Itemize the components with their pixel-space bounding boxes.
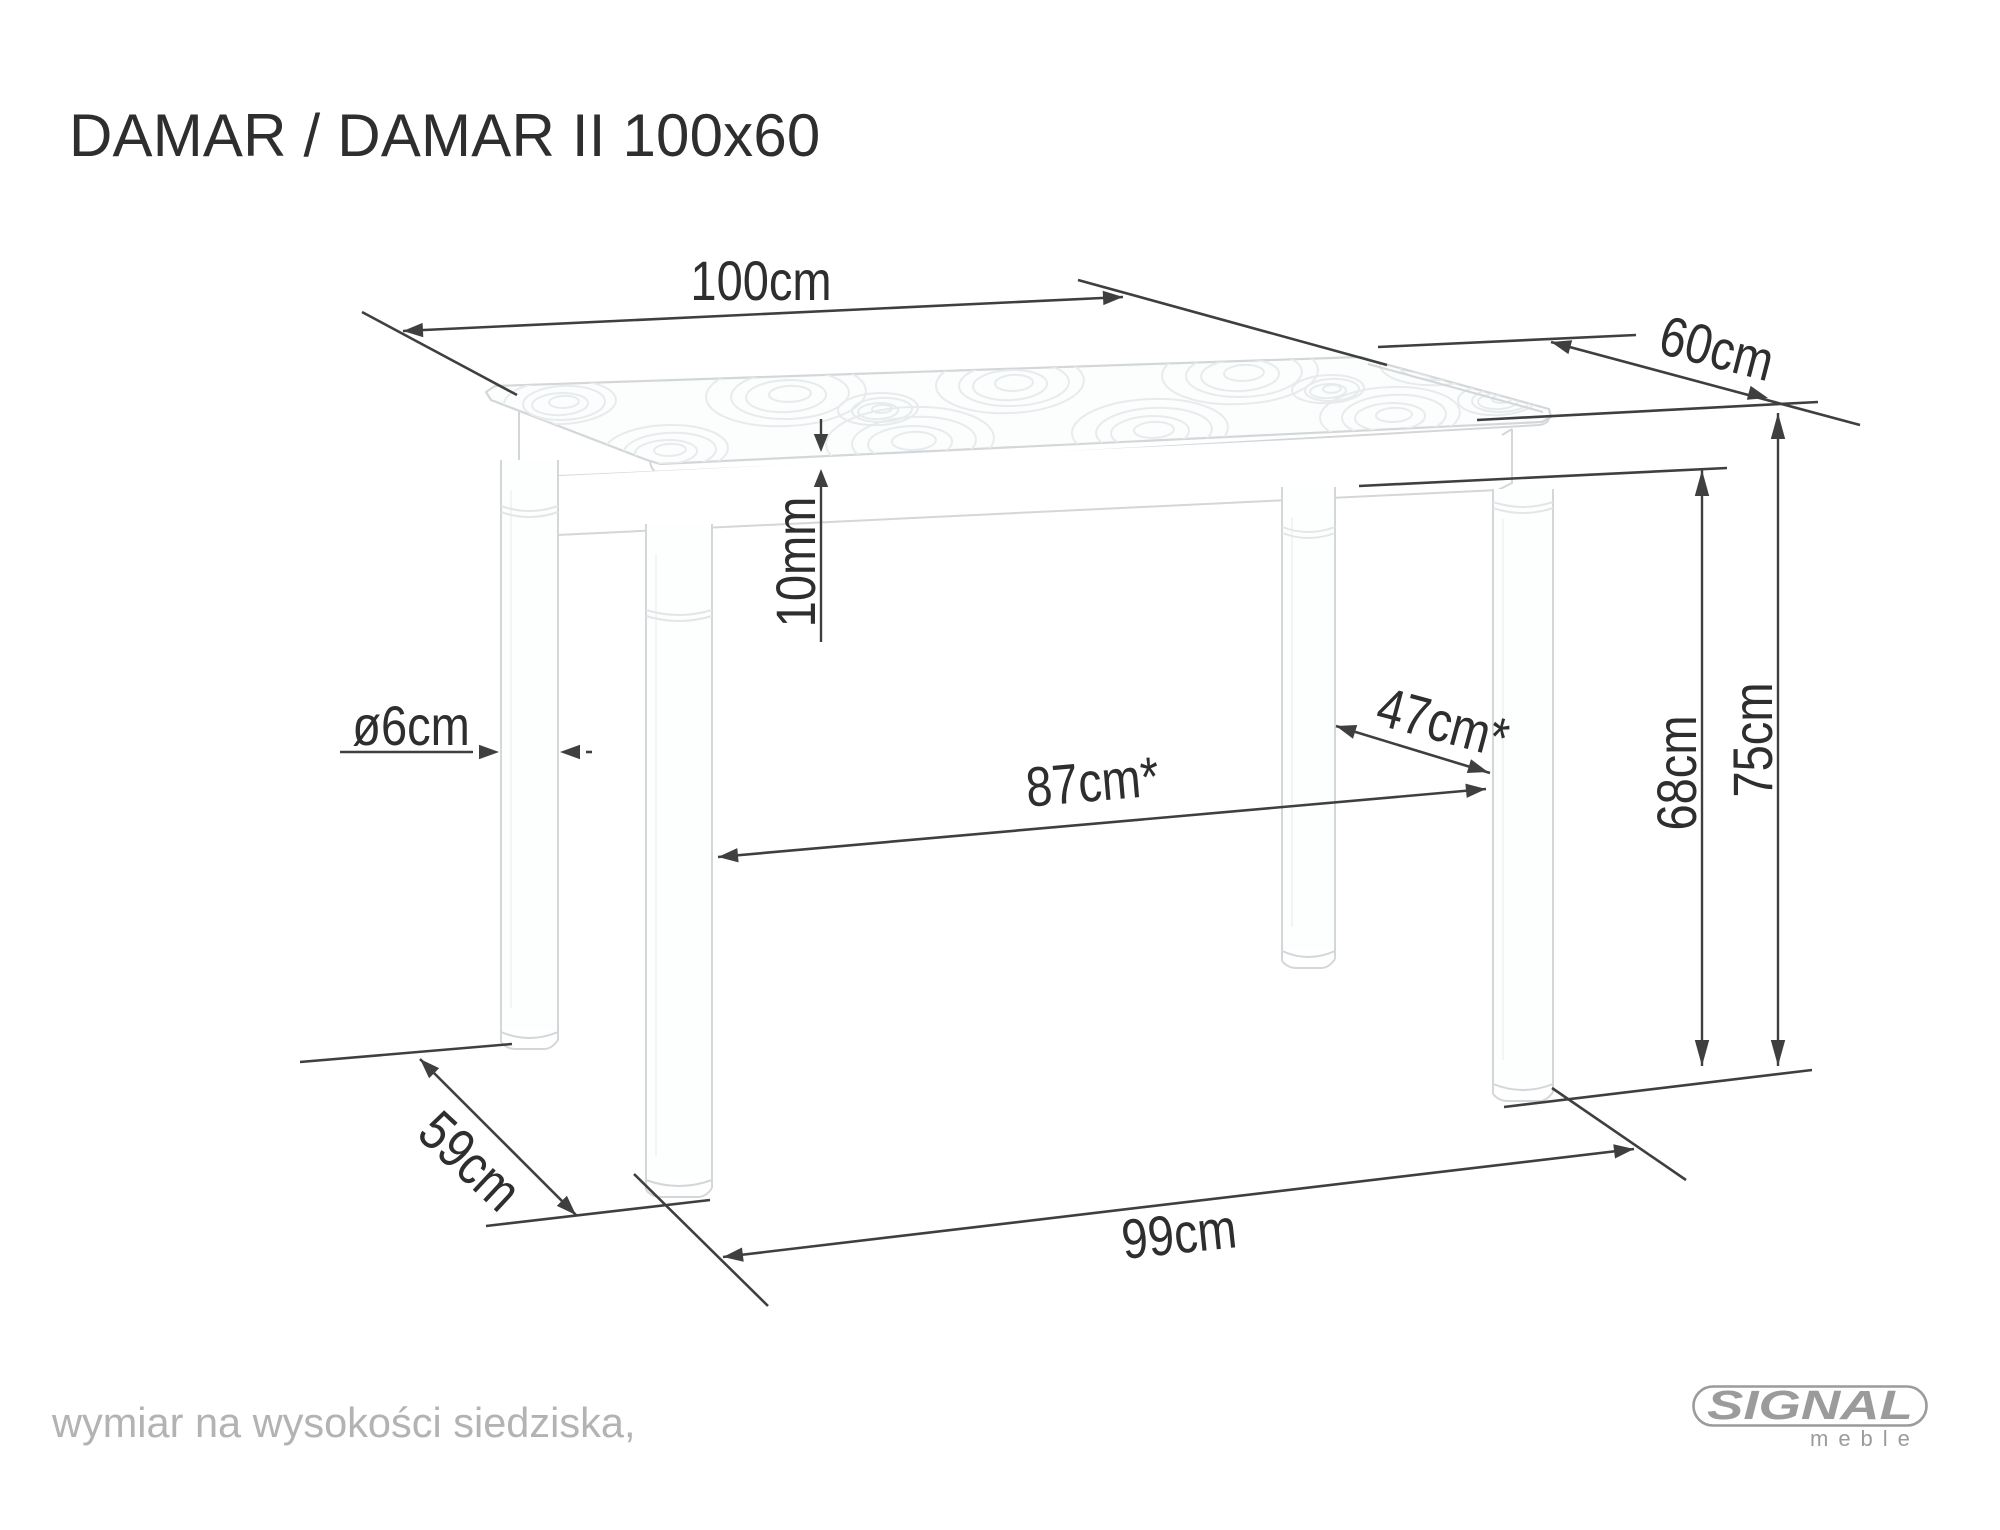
svg-text:59cm: 59cm xyxy=(407,1099,534,1223)
svg-text:68cm: 68cm xyxy=(1645,715,1708,830)
svg-text:100cm: 100cm xyxy=(690,249,831,312)
svg-text:DAMAR / DAMAR II 100x60: DAMAR / DAMAR II 100x60 xyxy=(69,102,821,169)
svg-text:ø6cm: ø6cm xyxy=(352,694,470,757)
svg-text:wymiar na wysokości siedziska,: wymiar na wysokości siedziska, xyxy=(51,1399,635,1446)
svg-text:87cm*: 87cm* xyxy=(1023,744,1161,818)
svg-text:75cm: 75cm xyxy=(1721,682,1784,797)
svg-text:meble: meble xyxy=(1810,1426,1920,1451)
svg-text:10mm: 10mm xyxy=(764,497,827,628)
svg-text:60cm: 60cm xyxy=(1653,303,1780,393)
svg-text:SIGNAL: SIGNAL xyxy=(1707,1382,1913,1428)
svg-text:99cm: 99cm xyxy=(1118,1196,1239,1270)
